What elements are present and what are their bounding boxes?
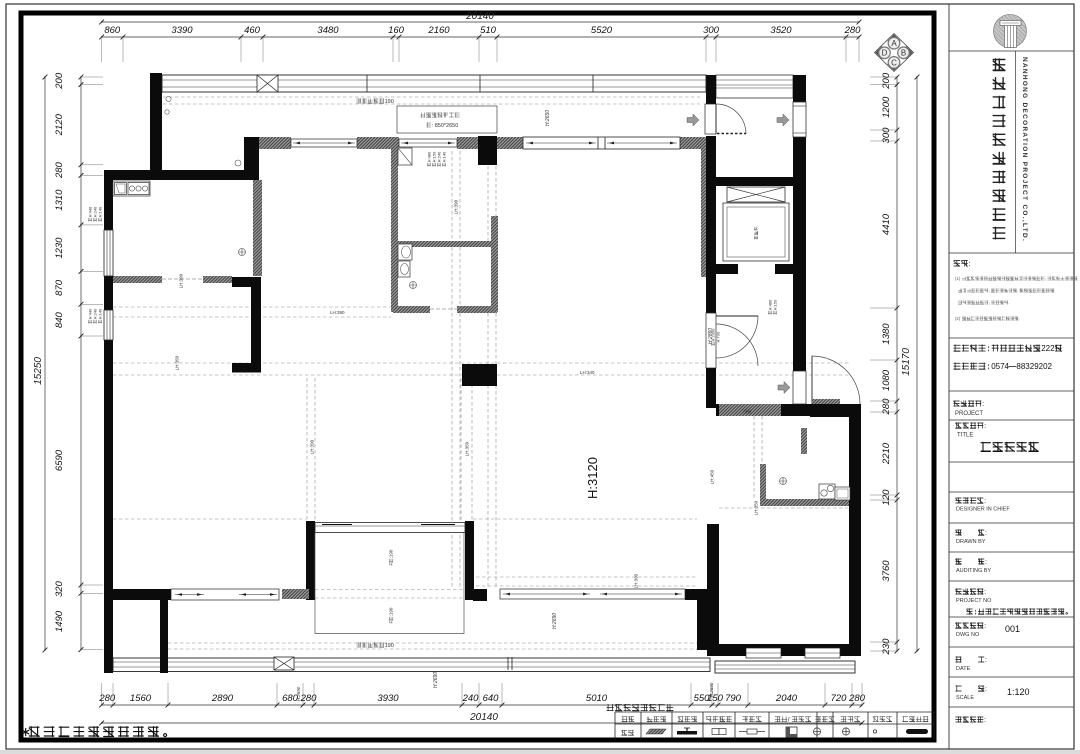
svg-text:B: B (901, 49, 906, 58)
svg-text:1560: 1560 (130, 693, 152, 704)
svg-text::: : (985, 657, 987, 664)
svg-text:NANHONG DECORATION PROJECT CO.: NANHONG DECORATION PROJECT CO.,LTD. (1021, 57, 1028, 242)
svg-text:(2): (2) (955, 316, 961, 321)
svg-text:,: , (1045, 276, 1046, 281)
svg-text:H:140: H:140 (441, 151, 446, 162)
svg-text:LH:340: LH:340 (580, 370, 595, 375)
svg-text:6590: 6590 (54, 449, 65, 471)
svg-text:LH:390: LH:390 (634, 573, 639, 588)
svg-text:120: 120 (881, 489, 892, 506)
svg-text:860: 860 (104, 25, 121, 36)
svg-text:A: A (891, 39, 897, 48)
svg-text:H:730: H:730 (715, 331, 720, 342)
svg-text::: : (969, 259, 971, 268)
svg-text:H:2690: H:2690 (552, 613, 558, 629)
svg-text:3390: 3390 (171, 25, 193, 36)
svg-text:20140: 20140 (465, 11, 494, 22)
svg-text:C: C (891, 58, 897, 67)
svg-text:320: 320 (54, 580, 65, 597)
svg-text:1490: 1490 (54, 610, 65, 632)
svg-text:0574: 0574 (991, 362, 1009, 371)
svg-text:190: 190 (385, 99, 394, 105)
svg-text:SCALE: SCALE (956, 695, 974, 701)
svg-text::190: :190 (389, 607, 394, 616)
svg-text:88329202: 88329202 (1016, 362, 1052, 371)
svg-text:2040: 2040 (775, 693, 798, 704)
svg-text:300: 300 (881, 127, 892, 144)
svg-text:280: 280 (98, 693, 116, 704)
svg-text::: : (984, 498, 986, 505)
svg-text:300: 300 (703, 25, 720, 36)
svg-text:200: 200 (54, 72, 65, 90)
svg-text:DATE: DATE (956, 666, 971, 672)
svg-text:LH:390: LH:390 (330, 310, 345, 315)
svg-text:720: 720 (831, 693, 848, 704)
svg-text:F: F (389, 563, 394, 566)
svg-text:2160: 2160 (427, 25, 450, 36)
svg-text:5520: 5520 (591, 25, 613, 36)
svg-text:840: 840 (54, 311, 65, 328)
svg-text:2210: 2210 (881, 442, 892, 465)
svg-text:DRAWN BY: DRAWN BY (956, 539, 986, 545)
svg-text:: 850*2650: : 850*2650 (432, 123, 459, 129)
svg-text:LH:390: LH:390 (179, 273, 184, 288)
svg-text::: : (984, 423, 986, 430)
svg-text:200: 200 (881, 72, 892, 90)
svg-text::: : (984, 589, 986, 596)
svg-text:3520: 3520 (770, 25, 792, 36)
svg-text:1230: 1230 (54, 237, 65, 259)
svg-text:LH:350: LH:350 (465, 441, 470, 456)
svg-text:2120: 2120 (54, 113, 65, 136)
svg-text::190: :190 (389, 549, 394, 558)
svg-text:2890: 2890 (211, 693, 234, 704)
svg-text:.: . (1008, 300, 1009, 305)
svg-text:(1): (1) (955, 276, 961, 281)
svg-text:190: 190 (385, 643, 394, 649)
svg-text:H:140: H:140 (97, 308, 102, 319)
svg-text:LH:350: LH:350 (175, 355, 180, 370)
svg-text:H:2690: H:2690 (709, 682, 714, 697)
svg-text:222: 222 (1041, 344, 1055, 353)
svg-text:AUDITING BY: AUDITING BY (956, 568, 991, 574)
svg-text:5010: 5010 (586, 693, 608, 704)
svg-text:20140: 20140 (469, 712, 498, 723)
svg-text:LH:450: LH:450 (710, 469, 715, 484)
svg-text:H:140: H:140 (97, 206, 102, 217)
svg-text:/: / (788, 717, 790, 724)
svg-text:TITLE: TITLE (957, 433, 973, 439)
svg-text:15170: 15170 (901, 348, 912, 376)
svg-text::: : (985, 530, 987, 537)
svg-text:3480: 3480 (317, 25, 339, 36)
svg-text:1310: 1310 (54, 189, 65, 211)
svg-text:F: F (389, 621, 394, 624)
svg-text:240: 240 (462, 693, 480, 704)
svg-text:H:2690: H:2690 (296, 686, 301, 701)
svg-text:1:120: 1:120 (1007, 687, 1030, 697)
svg-text:PROJECT: PROJECT (955, 411, 983, 417)
svg-text:H:3120: H:3120 (585, 457, 600, 499)
svg-text:280: 280 (54, 161, 65, 179)
svg-text:,: , (989, 300, 990, 305)
svg-text:280: 280 (844, 25, 862, 36)
svg-text:160: 160 (388, 25, 405, 36)
svg-text:.: . (1019, 316, 1020, 321)
svg-text::: : (985, 686, 987, 693)
svg-text:1200: 1200 (881, 96, 892, 118)
svg-text:3760: 3760 (881, 560, 892, 582)
svg-text::: : (984, 623, 986, 630)
svg-text::: : (984, 717, 986, 724)
svg-text:H:2690: H:2690 (433, 672, 439, 688)
svg-text:280: 280 (300, 693, 318, 704)
svg-text:DWG NO: DWG NO (956, 632, 980, 638)
svg-text:870: 870 (54, 279, 65, 296)
svg-text:230: 230 (881, 638, 892, 656)
svg-text:PROJECT NO: PROJECT NO (956, 598, 992, 604)
svg-text:3930: 3930 (377, 693, 399, 704)
svg-text::: : (985, 559, 987, 566)
svg-text:LH:350: LH:350 (754, 500, 759, 515)
svg-text:790: 790 (725, 693, 742, 704)
svg-text:,: , (1017, 288, 1018, 293)
svg-text:4410: 4410 (881, 213, 892, 235)
svg-text:1080: 1080 (881, 369, 892, 391)
svg-text:15250: 15250 (33, 357, 44, 385)
svg-text:280: 280 (881, 398, 892, 416)
svg-text:640: 640 (483, 693, 500, 704)
svg-text:510: 510 (480, 25, 497, 36)
svg-text:H:150: H:150 (772, 299, 777, 310)
svg-text::: : (982, 401, 984, 408)
svg-text:DESIGNER IN CHIEF: DESIGNER IN CHIEF (956, 507, 1010, 513)
svg-text:,: , (989, 288, 990, 293)
svg-text:LH:390: LH:390 (454, 199, 459, 214)
svg-text:280: 280 (848, 693, 866, 704)
svg-text:H:2650: H:2650 (545, 110, 551, 126)
svg-text:LH:390: LH:390 (310, 439, 315, 454)
svg-text:1380: 1380 (881, 323, 892, 345)
svg-text:D: D (882, 49, 888, 58)
svg-text:460: 460 (244, 25, 261, 36)
svg-text:001: 001 (1005, 624, 1020, 634)
